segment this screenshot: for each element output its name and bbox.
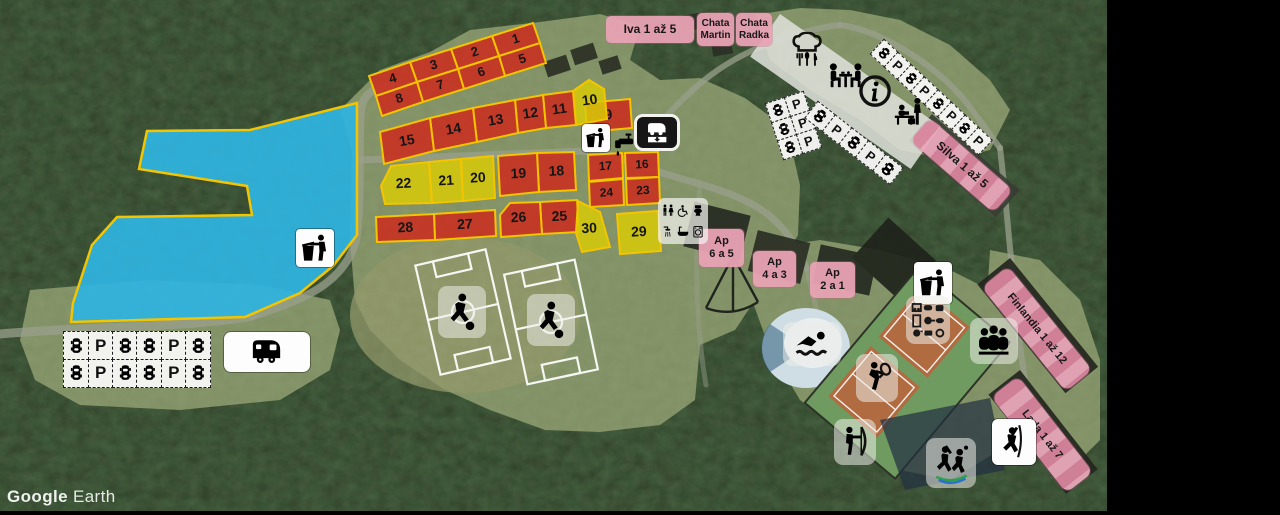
waste-disposal-icon — [582, 124, 610, 152]
letterbox-bottom — [0, 511, 1280, 515]
football-icon — [527, 294, 575, 346]
tennis-icon — [856, 354, 898, 402]
kitchen-equipment-icon — [906, 296, 950, 344]
bath-icon — [676, 222, 690, 242]
trampoline-games-icon — [926, 438, 976, 488]
google-earth-watermark: Google Earth — [7, 487, 116, 507]
reception-icon — [886, 92, 932, 132]
caravan-stand-icon — [224, 332, 310, 372]
wc-icon — [661, 201, 675, 221]
letterbox-right — [1107, 0, 1280, 515]
watermark-product: Earth — [73, 487, 116, 507]
football-icon — [438, 286, 486, 338]
campsite-map: 1234567891011121314151617181920212223242… — [0, 0, 1280, 515]
chemical-wc-dump-station-icon — [634, 114, 680, 151]
watermark-brand: Google — [7, 487, 68, 507]
meeting-room-icon — [970, 318, 1018, 364]
facility-icons — [0, 0, 1280, 515]
wheelchair-icon — [676, 201, 690, 221]
shower-icon — [661, 222, 675, 242]
washing-machine-icon — [691, 222, 705, 242]
sanitary-block-panel — [658, 198, 708, 244]
toilet-icon — [691, 201, 705, 221]
swimming-icon — [783, 322, 841, 366]
archery-icon — [834, 419, 876, 465]
waste-disposal-icon — [296, 229, 334, 267]
climbing-icon — [992, 419, 1036, 465]
